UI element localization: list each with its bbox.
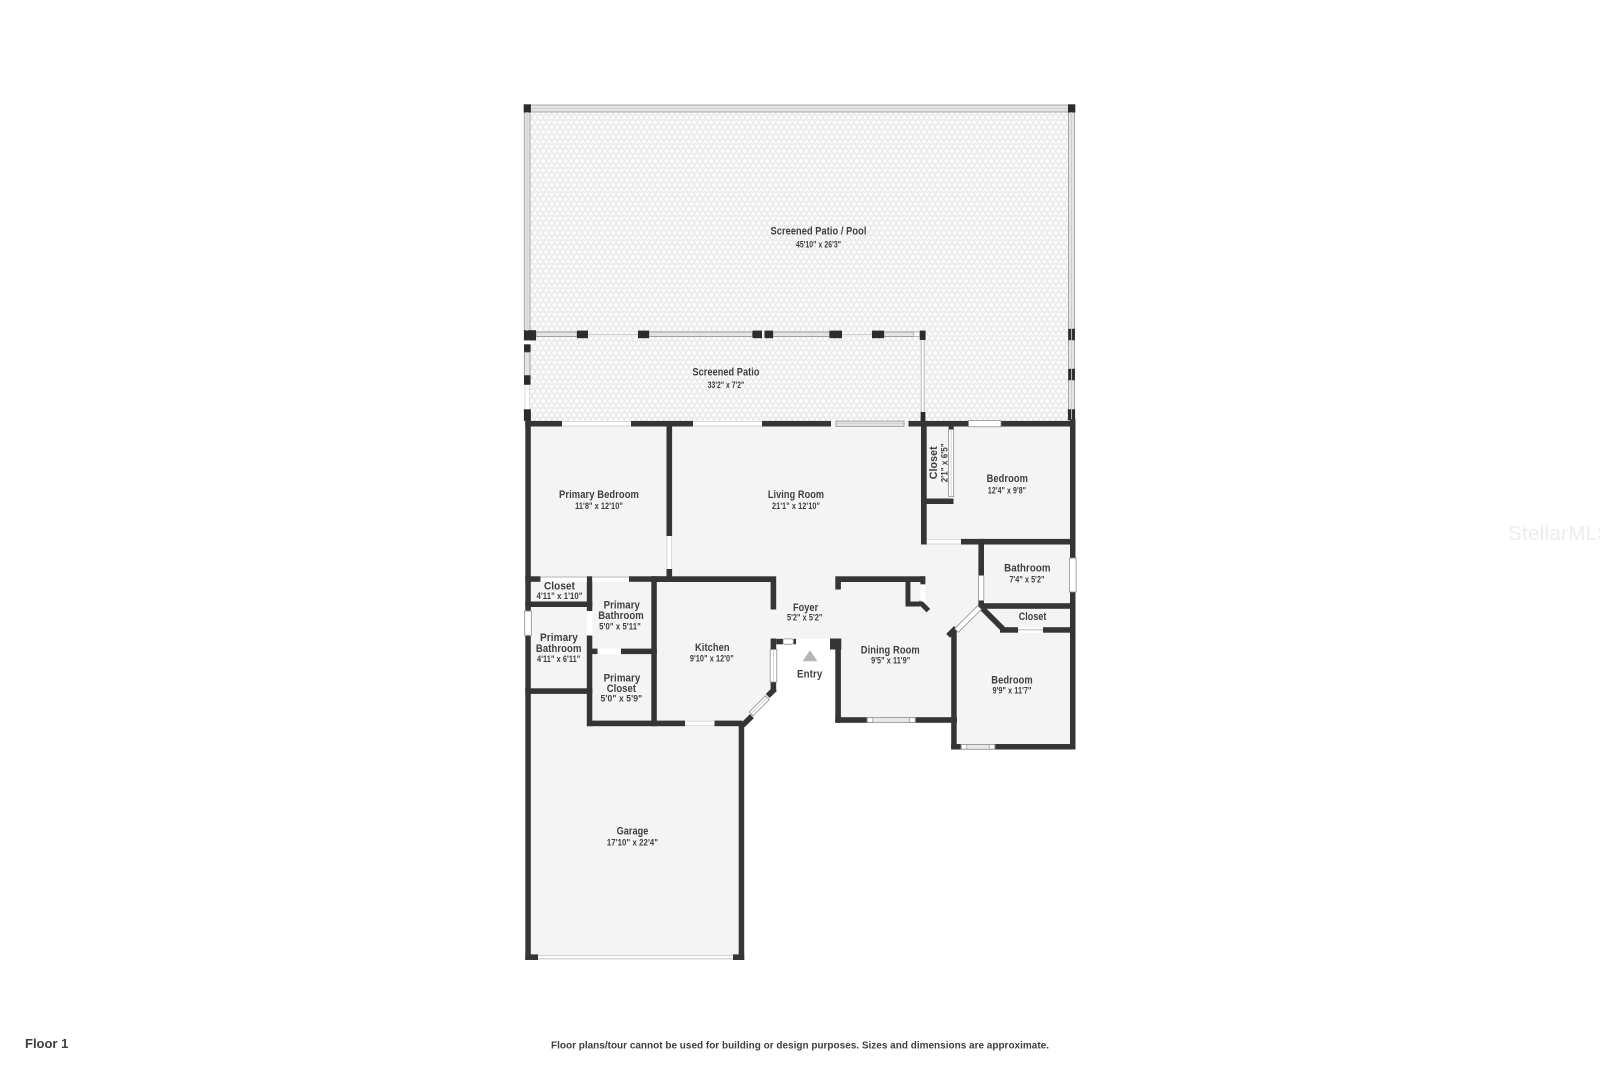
svg-text:Floor 1: Floor 1 bbox=[25, 1036, 68, 1051]
svg-text:Bathroom: Bathroom bbox=[1004, 562, 1051, 574]
svg-text:2'1" x 6'5": 2'1" x 6'5" bbox=[940, 443, 950, 482]
svg-text:Bedroom: Bedroom bbox=[991, 674, 1033, 686]
svg-text:Living Room: Living Room bbox=[768, 489, 824, 501]
svg-text:Bathroom: Bathroom bbox=[598, 610, 644, 622]
svg-text:11'8" x 12'10": 11'8" x 12'10" bbox=[575, 501, 623, 511]
svg-text:9'5" x 11'9": 9'5" x 11'9" bbox=[871, 656, 910, 666]
svg-text:21'1" x 12'10": 21'1" x 12'10" bbox=[772, 501, 820, 511]
svg-text:45'10" x 26'3": 45'10" x 26'3" bbox=[796, 239, 841, 249]
svg-text:Floor plans/tour cannot be use: Floor plans/tour cannot be used for buil… bbox=[551, 1040, 1049, 1051]
svg-text:5'2" x 5'2": 5'2" x 5'2" bbox=[787, 612, 822, 622]
svg-text:Screened Patio / Pool: Screened Patio / Pool bbox=[771, 226, 867, 238]
svg-text:Primary Bedroom: Primary Bedroom bbox=[559, 489, 639, 501]
svg-text:17'10" x 22'4": 17'10" x 22'4" bbox=[607, 837, 658, 847]
svg-text:9'10" x 12'0": 9'10" x 12'0" bbox=[690, 654, 734, 664]
svg-text:Dining Room: Dining Room bbox=[861, 644, 920, 656]
svg-text:7'4" x 5'2": 7'4" x 5'2" bbox=[1009, 574, 1044, 584]
svg-text:Closet: Closet bbox=[928, 446, 940, 479]
svg-text:StellarMLS: StellarMLS bbox=[1508, 522, 1600, 545]
svg-text:5'0" x 5'11": 5'0" x 5'11" bbox=[599, 621, 641, 631]
svg-text:Kitchen: Kitchen bbox=[695, 642, 730, 654]
svg-text:33'2" x 7'2": 33'2" x 7'2" bbox=[708, 380, 745, 390]
svg-text:Entry: Entry bbox=[797, 668, 823, 680]
svg-text:Garage: Garage bbox=[617, 825, 649, 837]
svg-text:9'9" x 11'7": 9'9" x 11'7" bbox=[992, 686, 1031, 696]
svg-text:4'11" x 6'11": 4'11" x 6'11" bbox=[537, 654, 580, 664]
svg-text:4'11" x 1'10": 4'11" x 1'10" bbox=[537, 591, 583, 601]
svg-text:Bedroom: Bedroom bbox=[987, 473, 1028, 485]
svg-text:5'0" x 5'9": 5'0" x 5'9" bbox=[601, 694, 643, 704]
svg-text:Screened Patio: Screened Patio bbox=[693, 367, 760, 379]
svg-text:12'4" x 9'8": 12'4" x 9'8" bbox=[988, 485, 1026, 495]
svg-text:Closet: Closet bbox=[1019, 611, 1047, 623]
